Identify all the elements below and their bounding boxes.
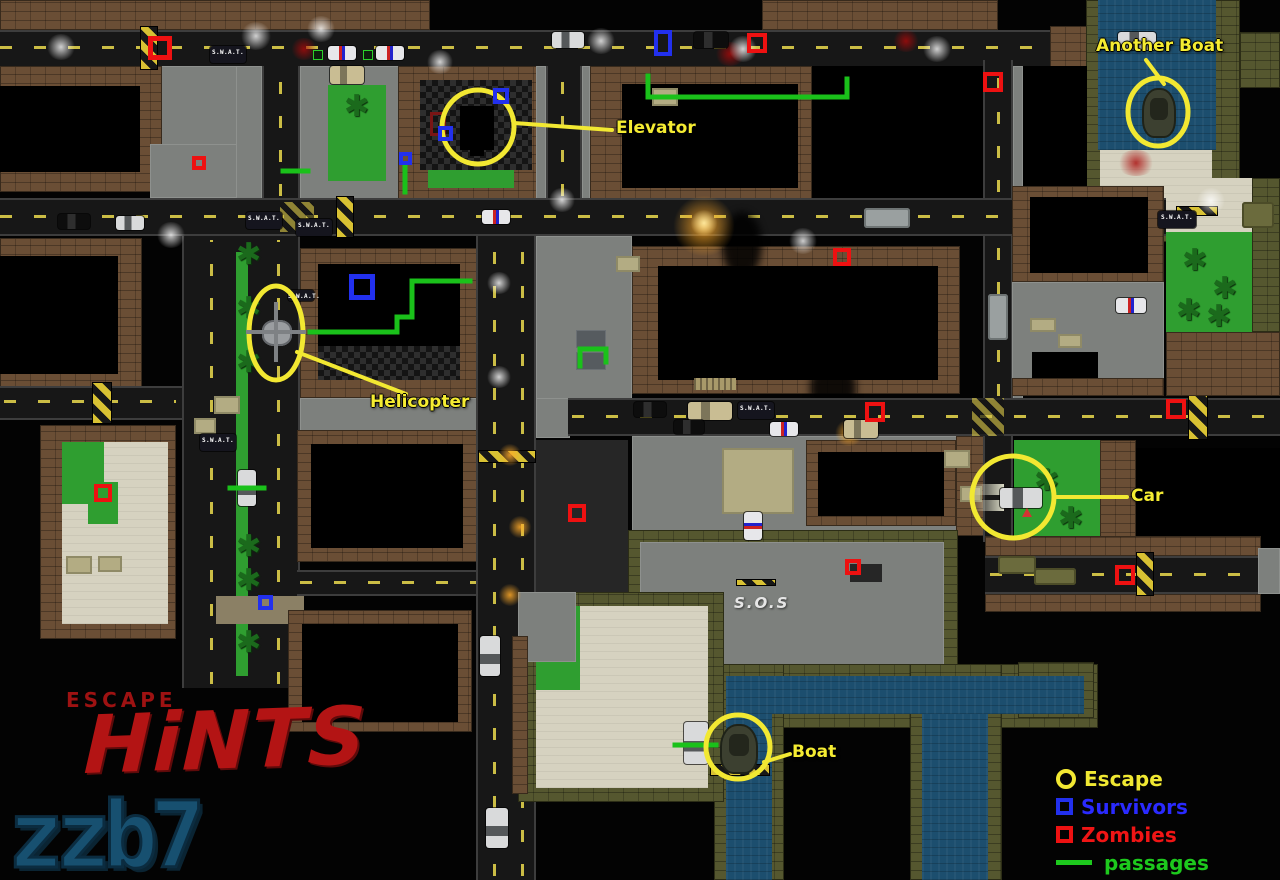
annotation-label-car: Car — [1131, 486, 1163, 506]
legend-label: passages — [1104, 851, 1209, 875]
helicopter-rotor — [274, 302, 278, 362]
annotation-label-elevator: Elevator — [616, 118, 696, 138]
legend-row-passages: passages — [1056, 850, 1209, 875]
title-hints: HiNTS — [82, 689, 369, 792]
watermark-zzb7: zzb7 — [8, 782, 198, 880]
legend-label: Escape — [1084, 767, 1163, 791]
annotation-label-helicopter: Helicopter — [370, 392, 469, 412]
game-map: S.W.A.T.S.W.A.T.S.W.A.T.S.W.A.T.S.W.A.T.… — [0, 0, 1280, 880]
legend-label: Zombies — [1081, 823, 1177, 847]
legend-label: Survivors — [1081, 795, 1188, 819]
annotation-label-another-boat: Another Boat — [1096, 36, 1223, 56]
zombie-square-icon — [1056, 826, 1073, 843]
passage-line-icon — [1056, 860, 1092, 865]
legend-row-zombies: Zombies — [1056, 822, 1209, 847]
survivor-square-icon — [1056, 798, 1073, 815]
annotation-label-boat: Boat — [792, 742, 836, 762]
legend-row-survivors: Survivors — [1056, 794, 1209, 819]
escape-circle-icon — [1056, 769, 1076, 789]
legend: Escape Survivors Zombies passages — [1056, 766, 1209, 875]
legend-row-escape: Escape — [1056, 766, 1209, 791]
sos-ground-text: S.O.S — [734, 594, 789, 612]
